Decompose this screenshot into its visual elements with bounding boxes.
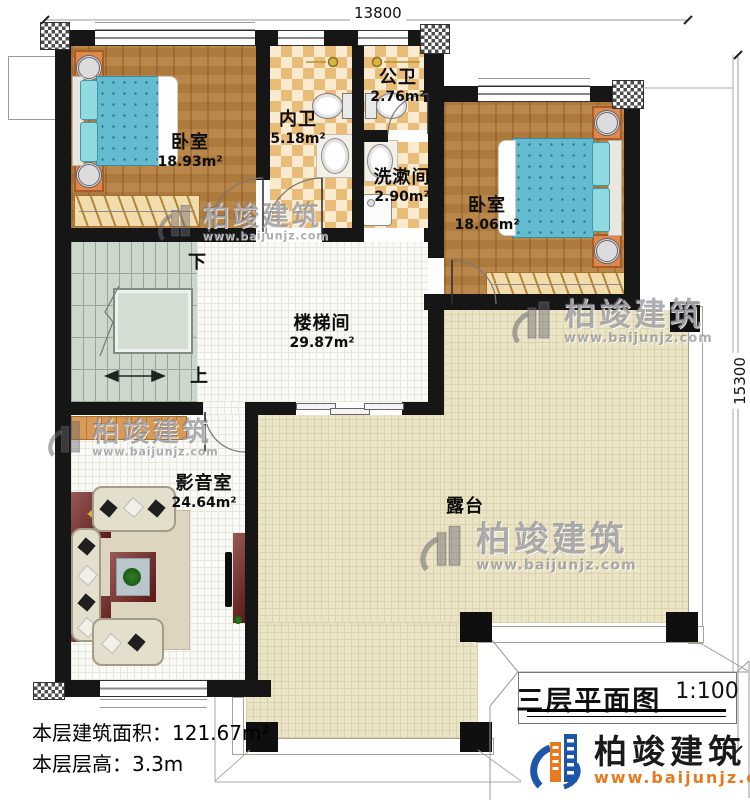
room-label-public-bath: 公卫 2.76m²	[348, 68, 448, 105]
stair-up-label: 上	[190, 362, 208, 388]
room-label-hometheater: 影音室 24.64m²	[144, 474, 264, 511]
room-label-ensuite-bath: 内卫 5.18m²	[248, 110, 348, 147]
room-area: 29.87m²	[262, 335, 382, 351]
floor-height-value: 3.3m	[132, 752, 183, 776]
floor-area-label: 本层建筑面积：	[32, 721, 172, 745]
watermark-brand: 柏竣建筑	[92, 418, 218, 447]
watermark-url: www.baijunjz.com	[92, 447, 218, 459]
room-area: 18.93m²	[130, 154, 250, 170]
dimension-lines	[45, 20, 738, 750]
room-area: 2.76m²	[348, 89, 448, 105]
dimension-right-label: 15300	[731, 353, 749, 409]
watermark-url: www.baijunjz.com	[476, 559, 637, 574]
room-name: 卧室	[427, 196, 547, 217]
towel-bars	[306, 58, 420, 67]
stair-arrow	[106, 371, 164, 381]
watermark-logo-icon	[420, 522, 468, 574]
brand-website: www.baijunjz.com	[594, 770, 750, 787]
floor-area-value: 121.67m²	[172, 721, 269, 745]
room-area: 5.18m²	[248, 131, 348, 147]
titleblock-face: 三层平面图 1:100	[518, 672, 737, 724]
watermark: 柏竣建筑www.baijunjz.com	[512, 298, 713, 346]
room-name: 洗漱间	[352, 168, 452, 189]
stair-break-line	[100, 286, 119, 356]
room-label-bedroom1: 卧室 18.93m²	[130, 133, 250, 170]
watermark: 柏竣建筑www.baijunjz.com	[420, 522, 637, 574]
brand-name: 柏竣建筑	[594, 735, 750, 770]
watermark-logo-icon	[158, 202, 195, 243]
brand-logo-icon	[530, 730, 586, 792]
watermark-logo-icon	[48, 418, 85, 459]
brand-logo-row: 柏竣建筑 www.baijunjz.com	[530, 730, 750, 792]
room-name: 内卫	[248, 110, 348, 131]
watermark-url: www.baijunjz.com	[202, 231, 328, 243]
room-name: 卧室	[130, 133, 250, 154]
dimension-top-label: 13800	[350, 4, 406, 22]
watermark-brand: 柏竣建筑	[476, 522, 637, 558]
floor-area-line: 本层建筑面积：121.67m²	[32, 718, 269, 749]
watermark: 柏竣建筑www.baijunjz.com	[158, 202, 329, 243]
watermark: 柏竣建筑www.baijunjz.com	[48, 418, 219, 459]
room-name: 露台	[405, 497, 525, 518]
watermark-logo-icon	[512, 298, 556, 346]
floorplan-canvas: ✦ ✦	[0, 0, 750, 803]
floor-height-label: 本层层高：	[32, 752, 132, 776]
watermark-url: www.baijunjz.com	[564, 332, 713, 346]
floor-info: 本层建筑面积：121.67m² 本层层高：3.3m	[32, 718, 269, 780]
room-name: 楼梯间	[262, 314, 382, 335]
floor-height-line: 本层层高：3.3m	[32, 749, 269, 780]
plan-scale: 1:100	[675, 679, 738, 704]
room-label-stairhall: 楼梯间 29.87m²	[262, 314, 382, 351]
room-name: 影音室	[144, 474, 264, 495]
room-area: 18.06m²	[427, 217, 547, 233]
watermark-brand: 柏竣建筑	[202, 202, 328, 231]
room-label-bedroom2: 卧室 18.06m²	[427, 196, 547, 233]
title-underline	[527, 709, 726, 717]
room-area: 24.64m²	[144, 495, 264, 511]
watermark-brand: 柏竣建筑	[564, 298, 713, 332]
room-name: 公卫	[348, 68, 448, 89]
room-label-terrace: 露台	[405, 497, 525, 518]
dimension-ticks	[41, 16, 742, 754]
stair-down-label: 下	[188, 248, 206, 274]
